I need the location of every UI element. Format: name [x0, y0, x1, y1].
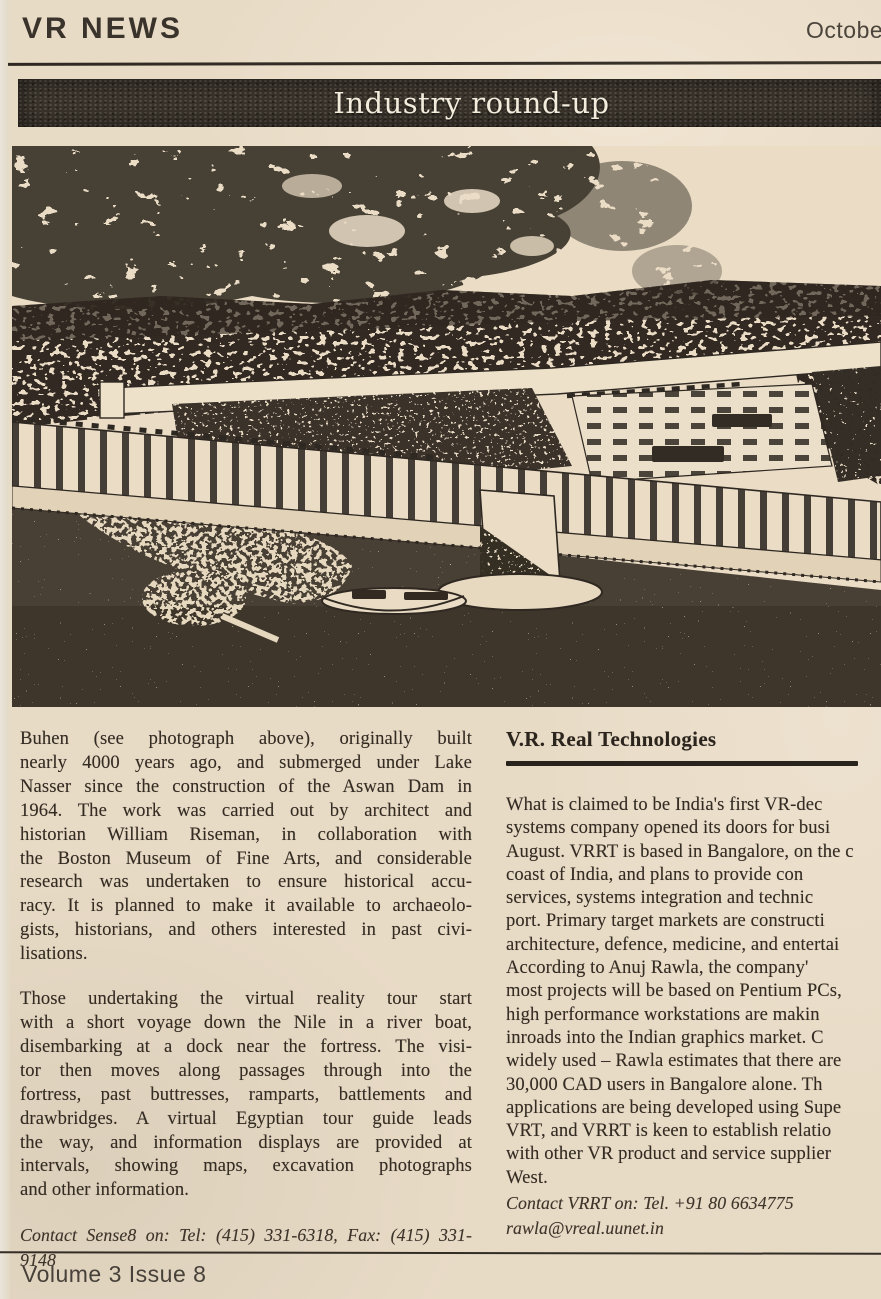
text-line: gists, historians, and others interested… — [20, 918, 472, 942]
text-line: tor then moves along passages through in… — [20, 1059, 472, 1083]
text-line: 1964. The work was carried out by archit… — [20, 799, 472, 823]
text-line: disembarking at a dock near the fortress… — [20, 1035, 472, 1059]
text-line: applications are being developed using S… — [506, 1096, 881, 1119]
text-line: and other information. — [20, 1178, 472, 1202]
text-line: inroads into the Indian graphics market.… — [506, 1026, 881, 1049]
paragraph-buhen: Buhen (see photograph above), originally… — [20, 727, 472, 966]
text-line: VRT, and VRRT is keen to establish relat… — [506, 1119, 881, 1142]
masthead-title: VR NEWS — [22, 12, 183, 46]
text-line: rawla@vreal.uunet.in — [506, 1216, 881, 1241]
issue-date: October — [806, 17, 881, 44]
heading-rule — [506, 761, 858, 766]
scan-edge — [0, 0, 11, 1299]
text-line: 30,000 CAD users in Bangalore alone. Th — [506, 1073, 881, 1096]
right-column: V.R. Real Technologies What is claimed t… — [506, 727, 881, 1240]
article-heading: V.R. Real Technologies — [506, 727, 881, 752]
photo-boat — [322, 588, 466, 614]
text-line: lisations. — [20, 942, 472, 966]
text-line: the Boston Museum of Fine Arts, and cons… — [20, 847, 472, 871]
text-line: nearly 4000 years ago, and submerged und… — [20, 751, 472, 775]
section-banner: Industry round-up — [18, 79, 881, 127]
text-line: What is claimed to be India's first VR-d… — [506, 793, 881, 816]
text-line: According to Anuj Rawla, the company' — [506, 956, 881, 979]
text-line: architecture, defence, medicine, and ent… — [506, 933, 881, 956]
text-line: West. — [506, 1166, 881, 1189]
text-line: widely used – Rawla estimates that there… — [506, 1049, 881, 1072]
text-line: drawbridges. A virtual Egyptian tour gui… — [20, 1107, 472, 1131]
text-line: August. VRRT is based in Bangalore, on t… — [506, 840, 881, 863]
text-line: fortress, past buttresses, ramparts, bat… — [20, 1083, 472, 1107]
fortress-illustration — [12, 146, 881, 707]
left-column: Buhen (see photograph above), originally… — [20, 727, 472, 1272]
text-line: port. Primary target markets are constru… — [506, 909, 881, 932]
text-line: coast of India, and plans to provide con — [506, 863, 881, 886]
section-banner-title: Industry round-up — [333, 86, 609, 120]
paragraph-vrrt: What is claimed to be India's first VR-d… — [506, 793, 881, 1189]
text-line: historian William Riseman, in collaborat… — [20, 823, 472, 847]
text-line: with a short voyage down the Nile in a r… — [20, 1011, 472, 1035]
text-line: racy. It is planned to make it available… — [20, 894, 472, 918]
text-line: Contact Sense8 on: Tel: (415) 331-6318, … — [20, 1223, 472, 1248]
text-line: Those undertaking the virtual reality to… — [20, 987, 472, 1011]
text-line: services, systems integration and techni… — [506, 886, 881, 909]
footer-volume-issue: Volume 3 Issue 8 — [22, 1261, 206, 1288]
text-line: research was undertaken to ensure histor… — [20, 870, 472, 894]
paragraph-tour: Those undertaking the virtual reality to… — [20, 987, 472, 1202]
masthead-rule — [8, 61, 881, 66]
text-line: high performance workstations are makin — [506, 1003, 881, 1026]
text-line: intervals, showing maps, excavation phot… — [20, 1154, 472, 1178]
article-photo — [12, 146, 881, 707]
scanned-newsletter-page: VR NEWS October Industry round-up — [0, 0, 881, 1299]
text-line: Nasser since the construction of the Asw… — [20, 775, 472, 799]
contact-vrrt: Contact VRRT on: Tel. +91 80 6634775rawl… — [506, 1191, 881, 1240]
text-line: most projects will be based on Pentium P… — [506, 979, 881, 1002]
text-line: the way, and information displays are pr… — [20, 1131, 472, 1155]
text-line: systems company opened its doors for bus… — [506, 816, 881, 839]
text-line: Buhen (see photograph above), originally… — [20, 727, 472, 751]
text-line: with other VR product and service suppli… — [506, 1142, 881, 1165]
text-line: Contact VRRT on: Tel. +91 80 6634775 — [506, 1191, 881, 1216]
